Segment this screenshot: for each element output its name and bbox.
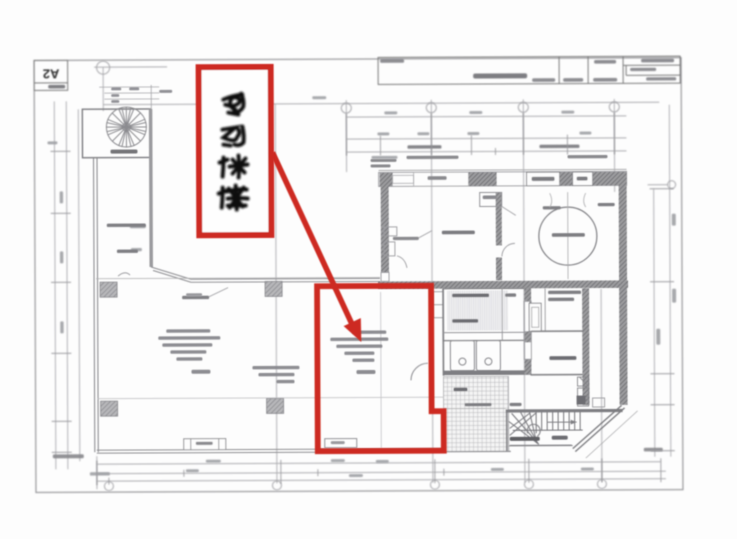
svg-text:A2: A2: [43, 66, 60, 81]
